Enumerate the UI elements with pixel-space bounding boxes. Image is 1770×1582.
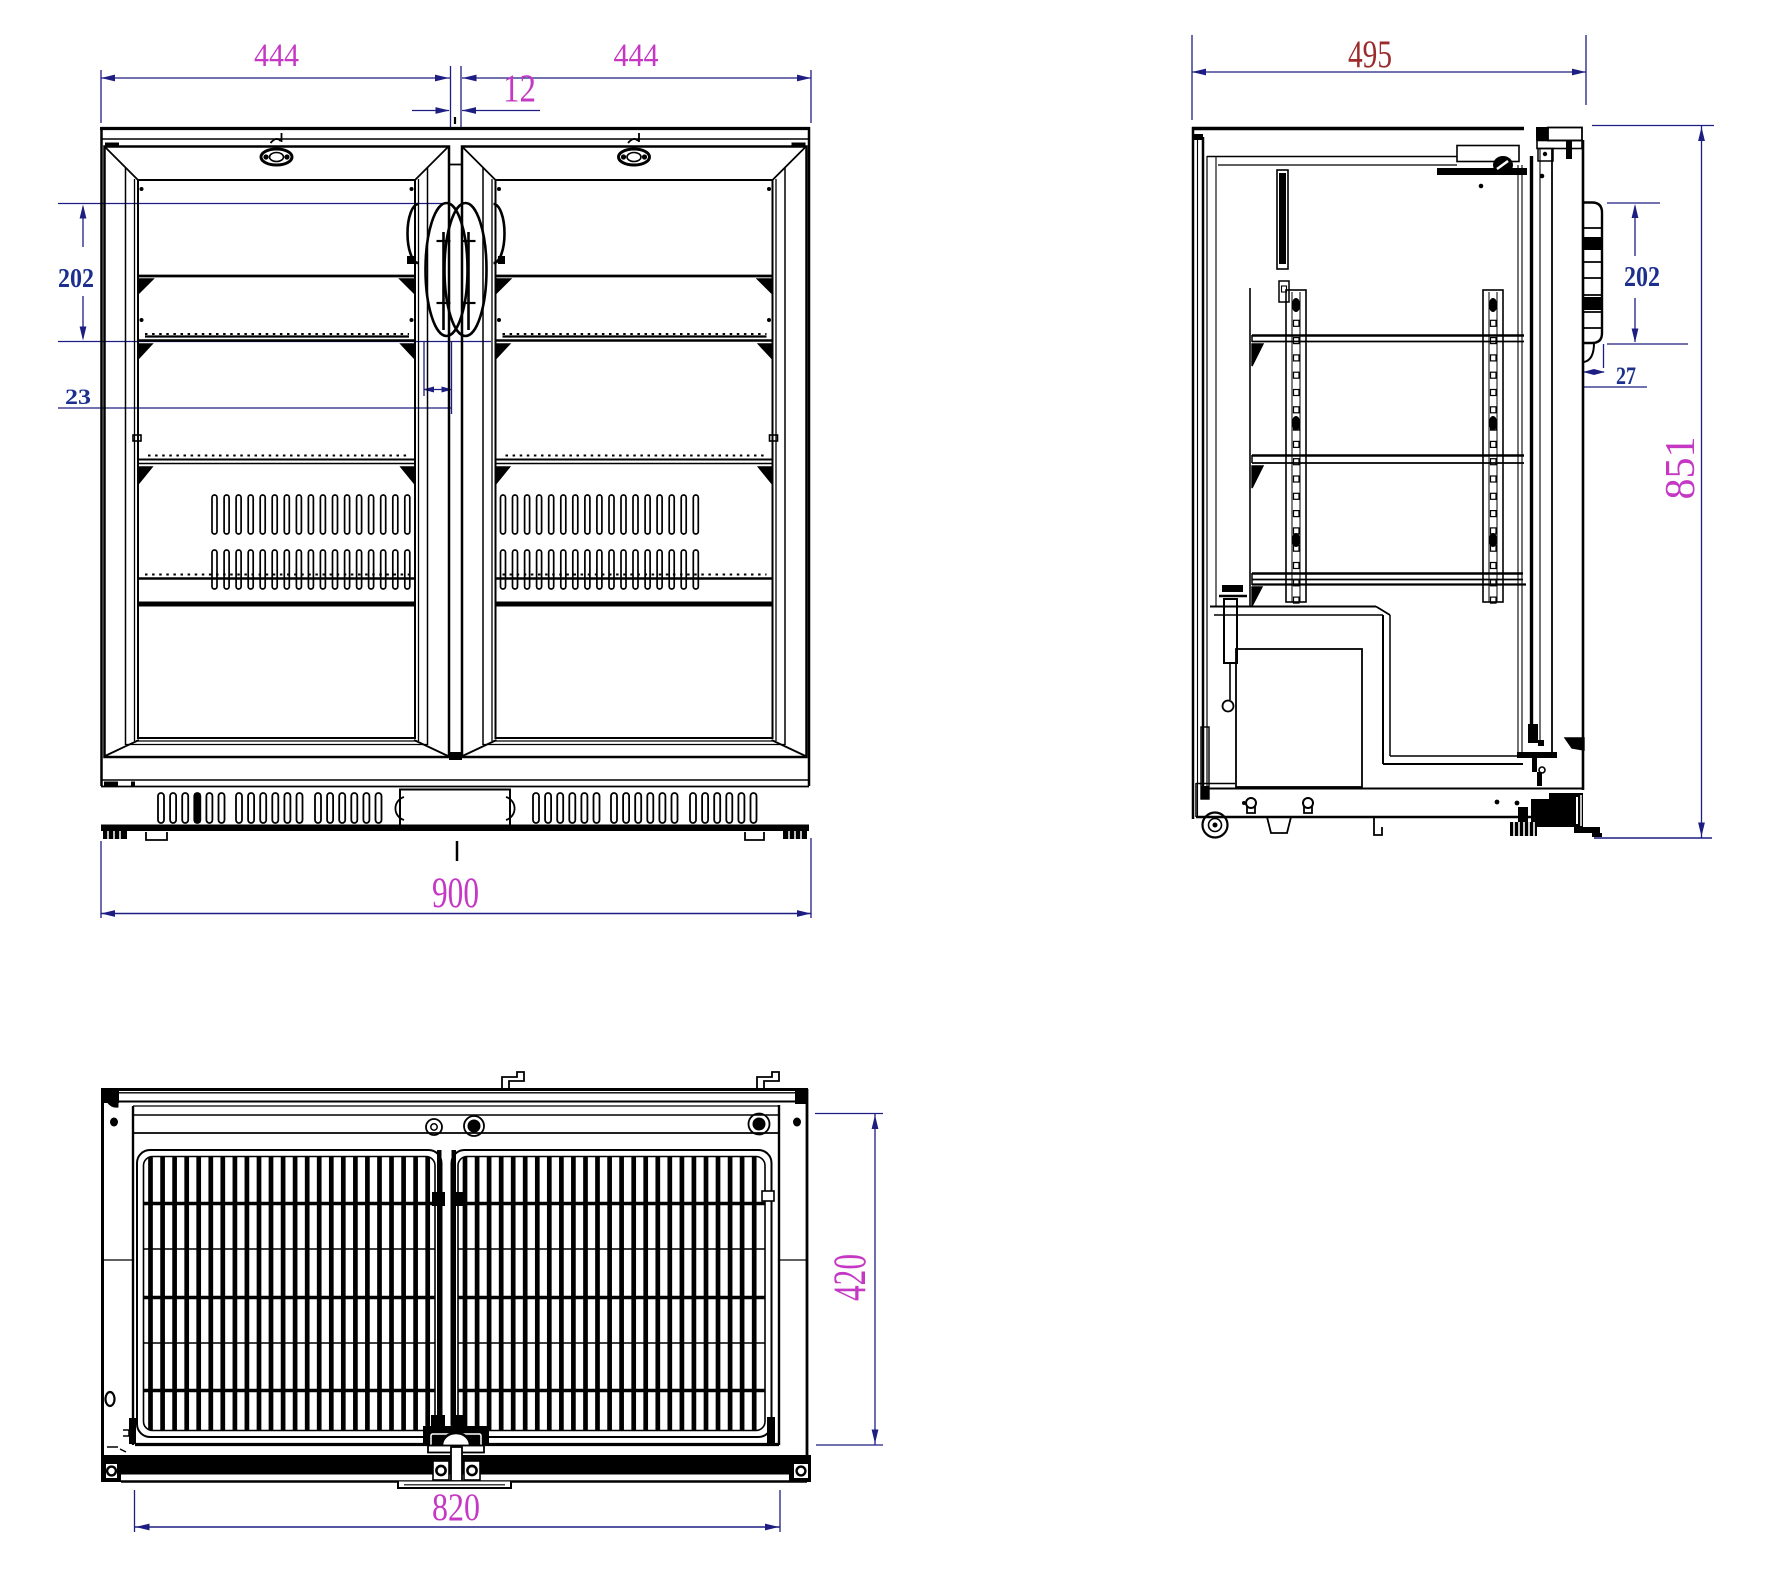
svg-text:202: 202 xyxy=(1624,260,1660,293)
svg-text:27: 27 xyxy=(1616,362,1636,390)
svg-text:900: 900 xyxy=(432,869,479,917)
svg-text:820: 820 xyxy=(432,1485,480,1529)
svg-text:23: 23 xyxy=(65,384,91,409)
svg-text:202: 202 xyxy=(58,263,94,294)
svg-text:444: 444 xyxy=(254,37,299,74)
svg-text:12: 12 xyxy=(503,66,536,109)
svg-text:495: 495 xyxy=(1348,33,1392,76)
svg-text:420: 420 xyxy=(824,1254,876,1301)
svg-text:444: 444 xyxy=(614,37,659,74)
svg-text:851: 851 xyxy=(1657,437,1704,500)
